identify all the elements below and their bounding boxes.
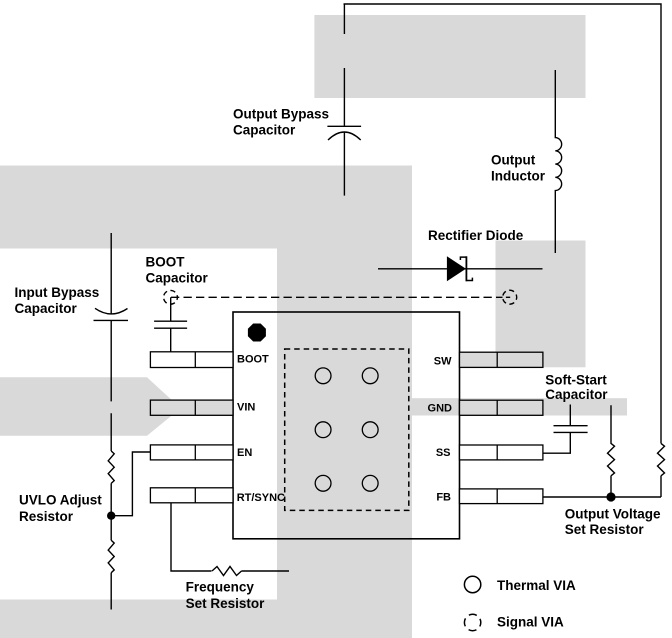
svg-text:Thermal VIA: Thermal VIA (497, 578, 576, 593)
svg-text:Output Voltage: Output Voltage (565, 506, 661, 521)
svg-text:Rectifier Diode: Rectifier Diode (428, 228, 524, 243)
svg-text:Input Bypass: Input Bypass (15, 285, 100, 300)
svg-text:BOOT: BOOT (237, 354, 269, 366)
svg-text:Capacitor: Capacitor (15, 301, 78, 316)
svg-text:SW: SW (434, 355, 452, 367)
svg-text:BOOT: BOOT (146, 254, 186, 269)
svg-text:Frequency: Frequency (186, 579, 255, 594)
svg-text:SS: SS (436, 447, 451, 459)
svg-text:Soft-Start: Soft-Start (545, 373, 607, 388)
svg-text:VIN: VIN (237, 402, 255, 414)
svg-text:EN: EN (237, 447, 252, 459)
svg-text:Capacitor: Capacitor (233, 122, 296, 137)
svg-text:RT/SYNC: RT/SYNC (237, 492, 285, 504)
svg-text:FB: FB (436, 492, 451, 504)
svg-text:Inductor: Inductor (491, 169, 546, 184)
svg-text:UVLO Adjust: UVLO Adjust (19, 492, 102, 507)
svg-text:Capacitor: Capacitor (146, 270, 209, 285)
svg-text:Resistor: Resistor (19, 509, 74, 524)
svg-text:GND: GND (428, 402, 453, 414)
svg-text:Signal VIA: Signal VIA (497, 615, 564, 630)
svg-text:Capacitor: Capacitor (545, 387, 608, 402)
svg-text:Set Resistor: Set Resistor (565, 522, 645, 537)
svg-text:Set Resistor: Set Resistor (186, 596, 266, 611)
svg-text:Output Bypass: Output Bypass (233, 106, 329, 121)
svg-text:Output: Output (491, 153, 536, 168)
